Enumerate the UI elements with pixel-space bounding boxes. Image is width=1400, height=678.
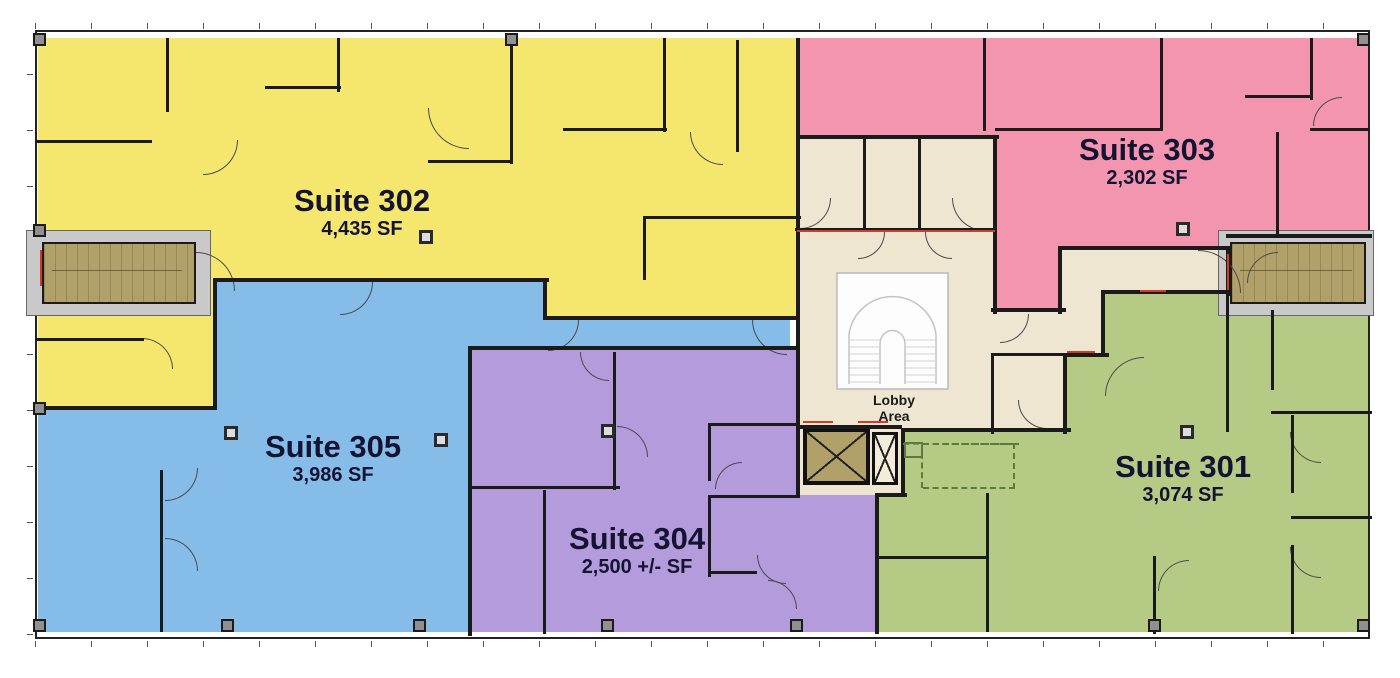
demising-accent-line: [1227, 254, 1229, 290]
wall-segment: [918, 137, 921, 230]
structural-column: [505, 33, 518, 46]
wall-segment: [797, 135, 999, 139]
demising-accent-line: [1067, 351, 1095, 353]
wall-segment: [796, 429, 800, 497]
wall-segment: [1291, 516, 1372, 519]
furniture-dashed-outline: [923, 443, 1015, 489]
wall-segment: [663, 38, 666, 132]
grid-tick-strip-top: [35, 23, 1368, 29]
wall-segment: [1063, 353, 1067, 434]
wall-segment: [1160, 38, 1163, 131]
wall-segment: [875, 493, 879, 634]
demising-accent-line: [40, 250, 42, 286]
wall-segment: [1058, 246, 1230, 250]
structural-column: [601, 619, 614, 632]
left-stairwell: [42, 242, 196, 304]
suite-302-label: Suite 302 4,435 SF: [212, 184, 512, 241]
demising-accent-line: [1140, 290, 1166, 292]
wall-segment: [643, 216, 801, 219]
suite-305-area: 3,986 SF: [183, 463, 483, 487]
furniture-dashed-box: [904, 442, 923, 458]
suite-301-name: Suite 301: [1033, 450, 1333, 483]
structural-column: [1148, 619, 1161, 632]
wall-segment: [337, 38, 340, 92]
suite-304-label: Suite 304 2,500 +/- SF: [487, 522, 787, 579]
wall-segment: [1310, 38, 1313, 100]
demising-accent-line: [803, 421, 833, 423]
suite-303-name: Suite 303: [997, 133, 1297, 166]
floor-plan-canvas: Suite 302 4,435 SF Suite 303 2,302 SF Su…: [0, 0, 1400, 678]
wall-segment: [983, 38, 986, 131]
suite-301-area: 3,074 SF: [1033, 483, 1333, 507]
suite-303-label: Suite 303 2,302 SF: [997, 133, 1297, 190]
suite-304-area: 2,500 +/- SF: [487, 555, 787, 579]
suite-305-name: Suite 305: [183, 430, 483, 463]
wall-segment: [428, 160, 513, 163]
suite-303-area: 2,302 SF: [997, 166, 1297, 190]
floor-plan-page: { "plan": { "suites": [ { "name": "Suite…: [0, 0, 1400, 678]
structural-column: [221, 619, 234, 632]
wall-segment: [796, 38, 800, 319]
wall-segment: [1101, 290, 1232, 294]
wall-segment: [265, 86, 341, 89]
wall-segment: [708, 423, 798, 426]
wall-segment: [1271, 411, 1372, 414]
grid-tick-strip-left: [27, 30, 33, 635]
elevator-shaft-main: [803, 428, 870, 485]
wall-segment: [901, 428, 905, 497]
wall-segment: [543, 280, 547, 320]
wall-segment: [877, 556, 989, 559]
wall-segment: [613, 352, 616, 490]
suite-302-name: Suite 302: [212, 184, 512, 217]
wall-segment: [991, 353, 1069, 356]
wall-segment: [643, 216, 646, 280]
wall-segment: [563, 128, 667, 131]
structural-column: [413, 619, 426, 632]
wall-segment: [1226, 234, 1372, 238]
wall-segment: [36, 338, 144, 341]
suite-301-label: Suite 301 3,074 SF: [1033, 450, 1333, 507]
wall-segment: [708, 495, 800, 498]
wall-segment: [1058, 248, 1062, 314]
wall-segment: [166, 38, 169, 112]
wall-segment: [543, 316, 798, 320]
wall-segment: [1226, 296, 1229, 432]
wall-segment: [1291, 545, 1294, 634]
wall-segment: [468, 486, 620, 489]
wall-segment: [995, 128, 1162, 131]
fixture-marker: [601, 424, 615, 438]
fixture-marker: [1176, 222, 1190, 236]
wall-segment: [796, 425, 902, 429]
structural-column: [790, 619, 803, 632]
wall-segment: [991, 308, 1066, 312]
wall-segment: [160, 470, 163, 632]
wall-segment: [901, 428, 1071, 432]
elevator-shaft-small: [872, 432, 898, 485]
lobby-label-line1: Lobby: [834, 392, 954, 408]
wall-segment: [863, 137, 866, 230]
suite-305-label: Suite 305 3,986 SF: [183, 430, 483, 487]
structural-column: [1357, 619, 1370, 632]
demising-accent-line: [797, 230, 995, 232]
wall-segment: [1310, 128, 1370, 131]
structural-column: [33, 619, 46, 632]
lobby-label: Lobby Area: [834, 392, 954, 424]
wall-segment: [708, 423, 711, 481]
left-stair-rail: [52, 270, 182, 271]
wall-segment: [1101, 290, 1105, 357]
grid-tick-strip-bottom: [35, 641, 1368, 647]
wall-segment: [468, 350, 472, 636]
wall-segment: [468, 346, 798, 350]
wall-segment: [213, 278, 549, 282]
wall-segment: [510, 38, 513, 164]
lobby-label-line2: Area: [834, 408, 954, 424]
wall-segment: [36, 406, 217, 410]
structural-column: [33, 33, 46, 46]
suite-302-area: 4,435 SF: [212, 217, 512, 241]
wall-segment: [1271, 310, 1274, 390]
wall-segment: [1245, 95, 1313, 98]
suite-304-name: Suite 304: [487, 522, 787, 555]
wall-segment: [796, 319, 800, 427]
wall-segment: [991, 353, 994, 434]
lobby-stair-icon: [836, 272, 949, 390]
wall-segment: [986, 493, 989, 632]
structural-column: [33, 402, 46, 415]
structural-column: [1357, 33, 1370, 46]
structural-column: [33, 224, 46, 237]
fixture-marker: [1180, 425, 1194, 439]
wall-segment: [213, 280, 217, 410]
wall-segment: [736, 40, 739, 152]
wall-segment: [36, 140, 152, 143]
